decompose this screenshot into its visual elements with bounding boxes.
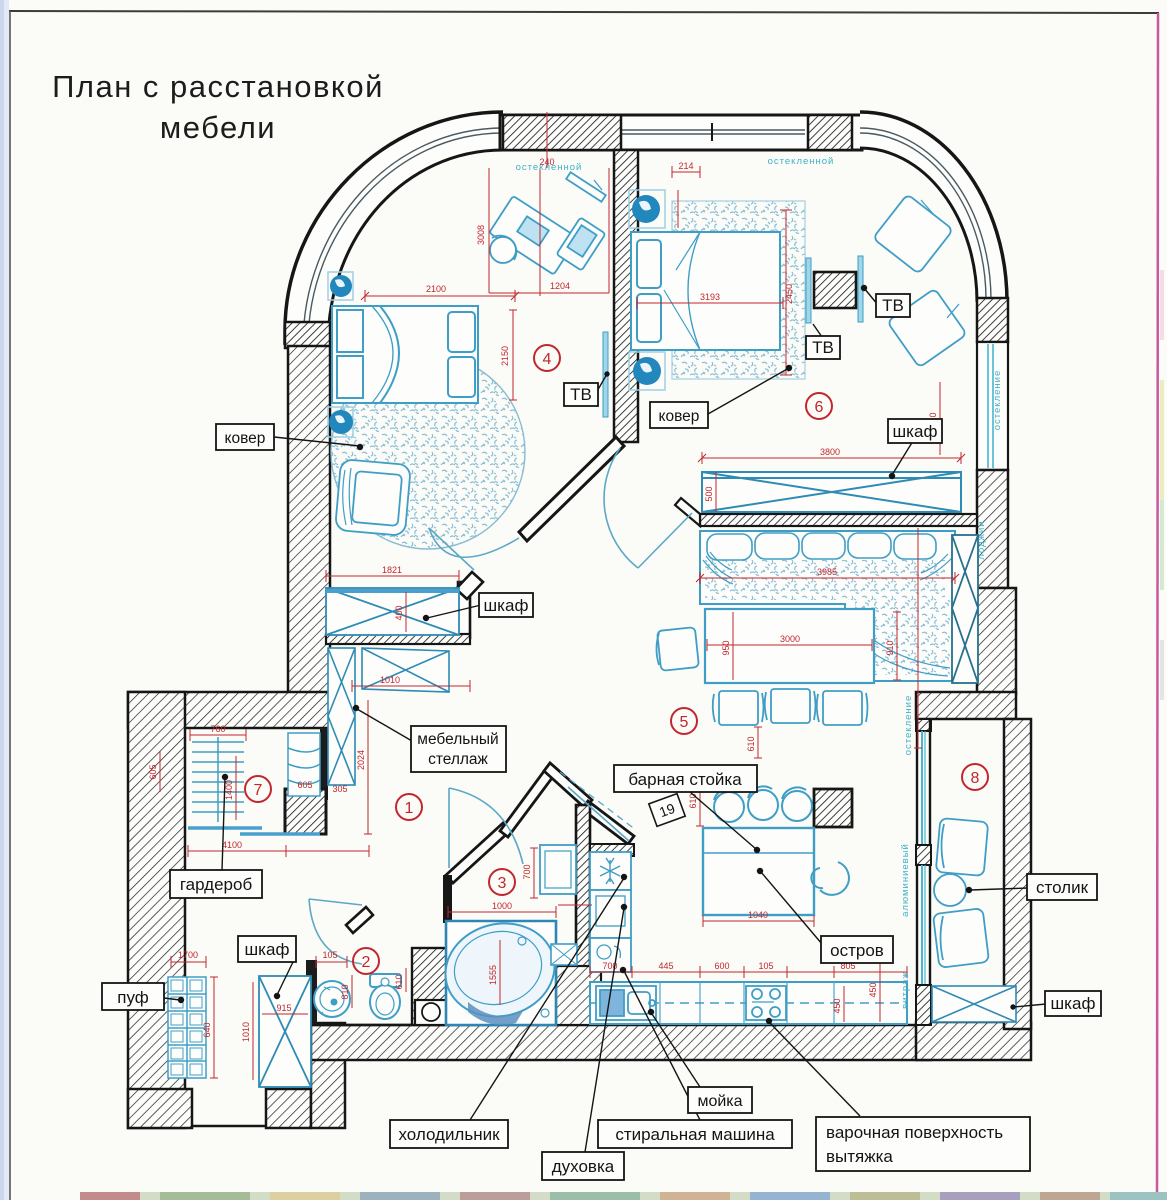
svg-text:3193: 3193 <box>700 292 720 302</box>
svg-text:шкаф: шкаф <box>893 422 938 441</box>
svg-text:450: 450 <box>832 998 842 1013</box>
svg-text:3800: 3800 <box>820 447 840 457</box>
svg-text:2100: 2100 <box>426 284 446 294</box>
svg-text:лоджии: лоджии <box>976 520 987 559</box>
svg-text:барная стойка: барная стойка <box>628 770 742 789</box>
svg-text:остекление: остекление <box>903 695 914 756</box>
svg-text:910: 910 <box>885 640 895 655</box>
svg-text:витраж: витраж <box>900 971 911 1009</box>
svg-text:1000: 1000 <box>492 901 512 911</box>
svg-text:шкаф: шкаф <box>484 596 529 615</box>
svg-text:духовка: духовка <box>552 1157 615 1176</box>
svg-text:105: 105 <box>758 961 773 971</box>
svg-text:1204: 1204 <box>550 281 570 291</box>
svg-text:ТВ: ТВ <box>812 338 834 357</box>
svg-text:ковер: ковер <box>225 430 266 447</box>
svg-text:остекленной: остекленной <box>516 162 583 173</box>
svg-text:450: 450 <box>868 982 878 997</box>
svg-text:остекление: остекление <box>992 370 1003 431</box>
svg-text:пуф: пуф <box>117 988 149 1007</box>
svg-text:остекленной: остекленной <box>768 156 835 167</box>
svg-text:План с расстановкой: План с расстановкой <box>52 69 384 104</box>
svg-text:стиральная машина: стиральная машина <box>615 1125 775 1144</box>
svg-text:2024: 2024 <box>356 750 366 770</box>
svg-text:214: 214 <box>678 161 693 171</box>
svg-text:мебельный: мебельный <box>417 731 498 748</box>
svg-text:640: 640 <box>202 1022 212 1037</box>
svg-text:105: 105 <box>322 950 337 960</box>
svg-text:1555: 1555 <box>488 965 498 985</box>
svg-text:3008: 3008 <box>476 225 486 245</box>
svg-text:1: 1 <box>405 800 414 817</box>
svg-text:остров: остров <box>830 941 884 960</box>
svg-text:3: 3 <box>498 875 507 892</box>
svg-text:8: 8 <box>971 770 980 787</box>
svg-text:столик: столик <box>1036 878 1089 897</box>
svg-text:мебели: мебели <box>160 110 276 145</box>
svg-text:7: 7 <box>254 782 263 799</box>
svg-text:гардероб: гардероб <box>180 875 253 894</box>
svg-text:950: 950 <box>721 640 731 655</box>
svg-text:ковер: ковер <box>659 408 700 425</box>
svg-text:610: 610 <box>688 793 698 808</box>
svg-text:700: 700 <box>522 864 532 879</box>
svg-text:ТВ: ТВ <box>882 296 904 315</box>
svg-text:1700: 1700 <box>178 950 198 960</box>
svg-text:ТВ: ТВ <box>570 385 592 404</box>
svg-text:1010: 1010 <box>380 675 400 685</box>
svg-text:1821: 1821 <box>382 565 402 575</box>
svg-text:4: 4 <box>543 351 552 368</box>
svg-text:3985: 3985 <box>817 567 837 577</box>
svg-text:2150: 2150 <box>500 346 510 366</box>
svg-text:холодильник: холодильник <box>398 1125 500 1144</box>
svg-text:445: 445 <box>658 961 673 971</box>
svg-text:5: 5 <box>680 714 689 731</box>
svg-text:6: 6 <box>815 399 824 416</box>
svg-text:3000: 3000 <box>780 634 800 644</box>
svg-text:2450: 2450 <box>784 284 794 304</box>
svg-text:1010: 1010 <box>241 1022 251 1042</box>
svg-text:610: 610 <box>746 736 756 751</box>
svg-text:305: 305 <box>332 784 347 794</box>
svg-text:4100: 4100 <box>222 840 242 850</box>
svg-text:шкаф: шкаф <box>245 940 290 959</box>
svg-text:стеллаж: стеллаж <box>428 751 488 768</box>
svg-text:760: 760 <box>210 724 225 734</box>
svg-text:915: 915 <box>276 1003 291 1013</box>
svg-text:мойка: мойка <box>697 1093 742 1110</box>
svg-text:605: 605 <box>297 780 312 790</box>
svg-text:варочная поверхность: варочная поверхность <box>826 1123 1003 1142</box>
svg-text:алюминиевый: алюминиевый <box>900 843 911 917</box>
svg-text:500: 500 <box>704 486 714 501</box>
svg-text:вытяжка: вытяжка <box>826 1147 893 1166</box>
svg-text:610: 610 <box>394 974 404 989</box>
svg-text:400: 400 <box>394 605 404 620</box>
svg-text:1040: 1040 <box>748 910 768 920</box>
svg-text:810: 810 <box>340 984 350 999</box>
svg-text:2: 2 <box>362 954 371 971</box>
svg-text:605: 605 <box>148 764 158 779</box>
svg-text:шкаф: шкаф <box>1051 994 1096 1013</box>
svg-text:600: 600 <box>714 961 729 971</box>
